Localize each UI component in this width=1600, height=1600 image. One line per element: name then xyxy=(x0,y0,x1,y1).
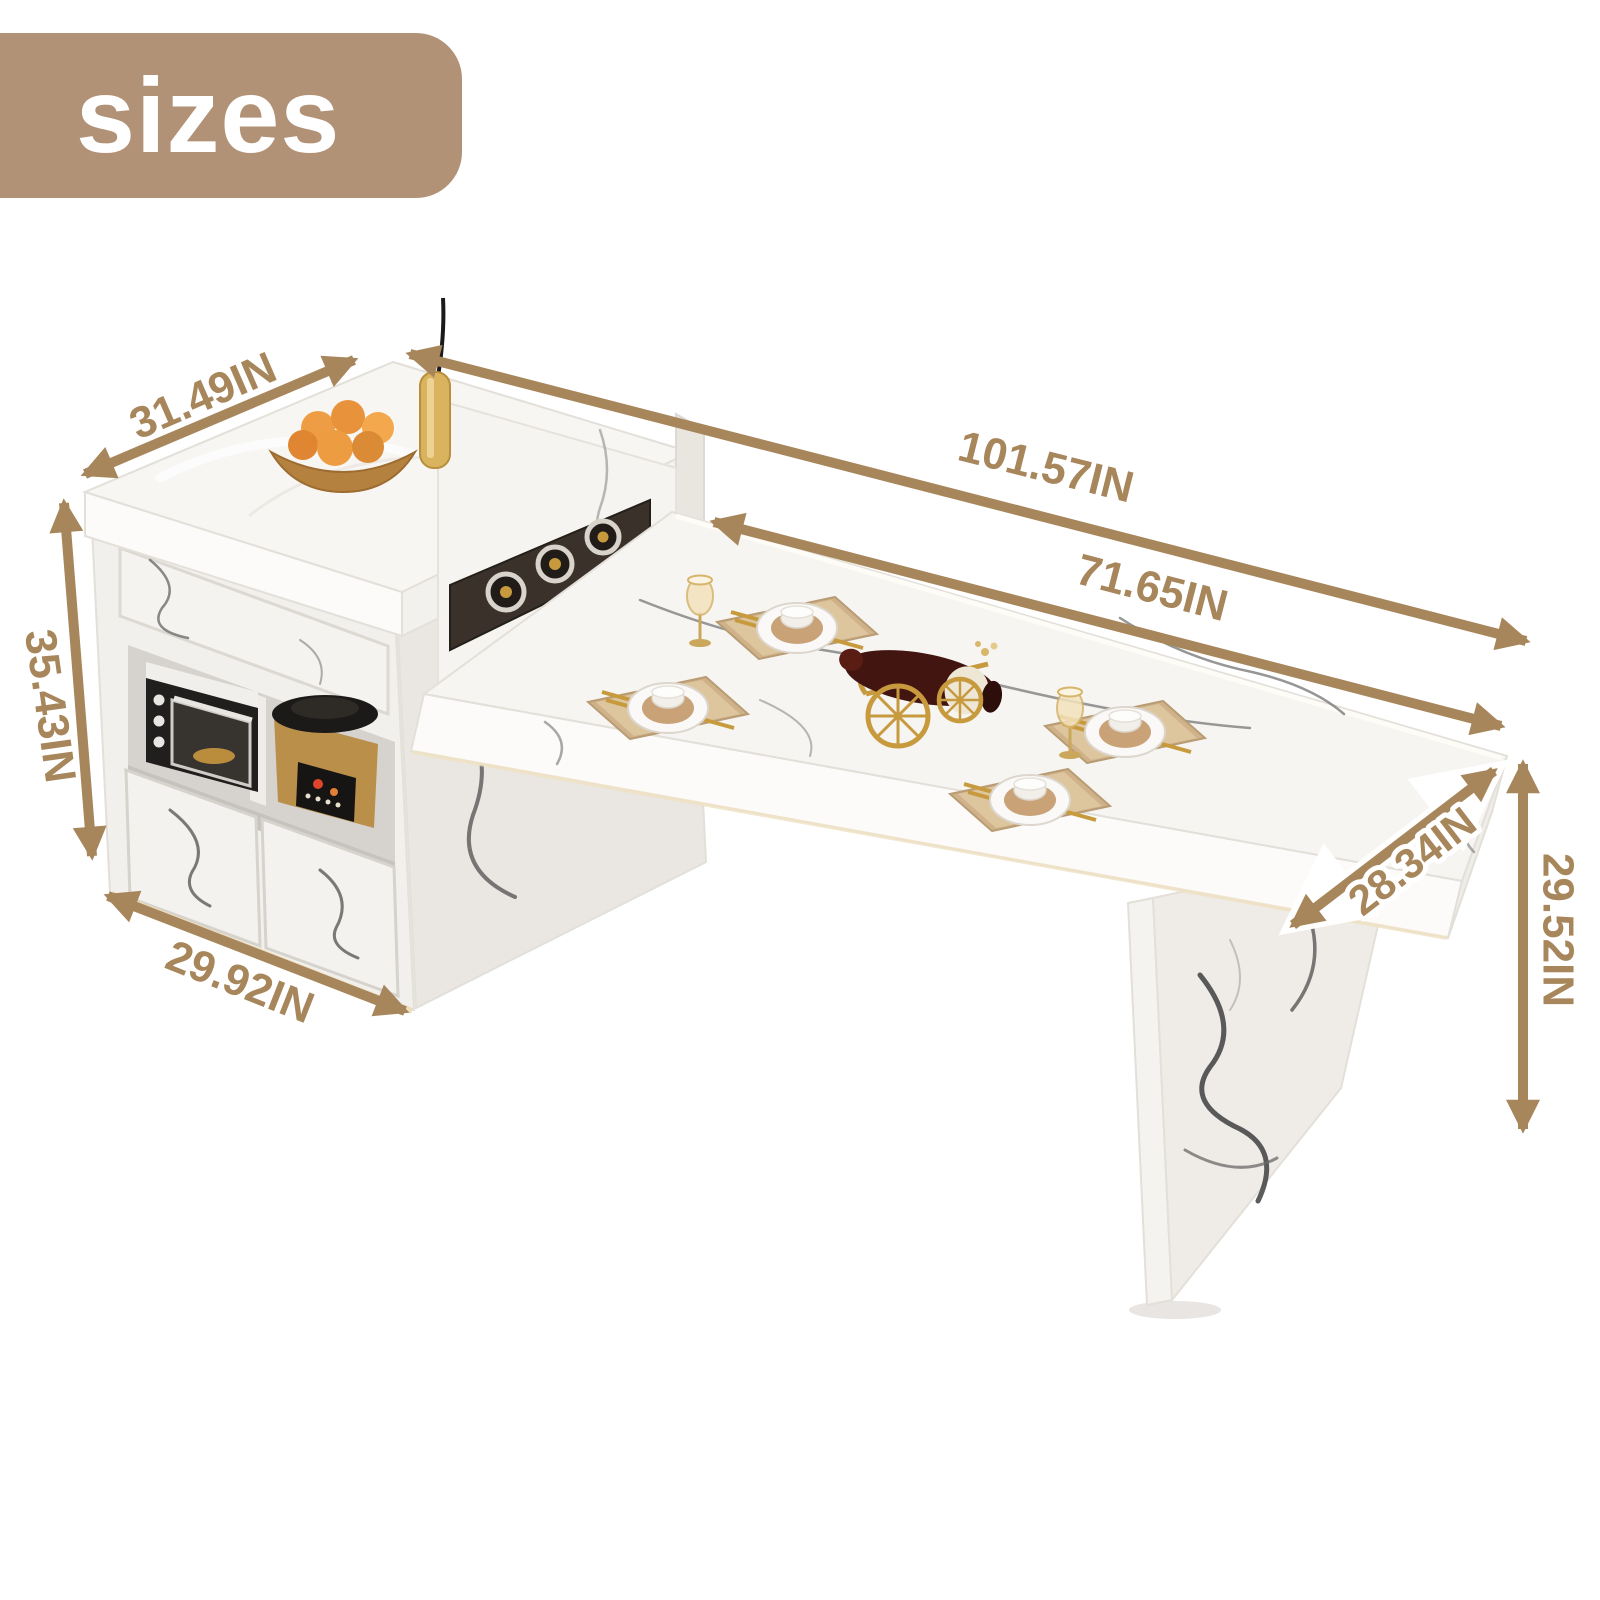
cooktop-knob-ring xyxy=(538,547,572,581)
product-dimensions-image: 31.49IN 101.57IN 71.65IN 35.43IN 29.92IN… xyxy=(0,0,1600,1600)
vase xyxy=(420,298,450,468)
sizes-badge: sizes xyxy=(0,33,462,198)
dimension-diagram: 31.49IN 101.57IN 71.65IN 35.43IN 29.92IN… xyxy=(0,0,1600,1600)
dim-label-table-height: 29.52IN xyxy=(1534,853,1583,1007)
cooktop-knob-ring xyxy=(587,521,619,553)
cooktop-knob-ring xyxy=(488,574,524,610)
sizes-badge-label: sizes xyxy=(76,63,340,169)
